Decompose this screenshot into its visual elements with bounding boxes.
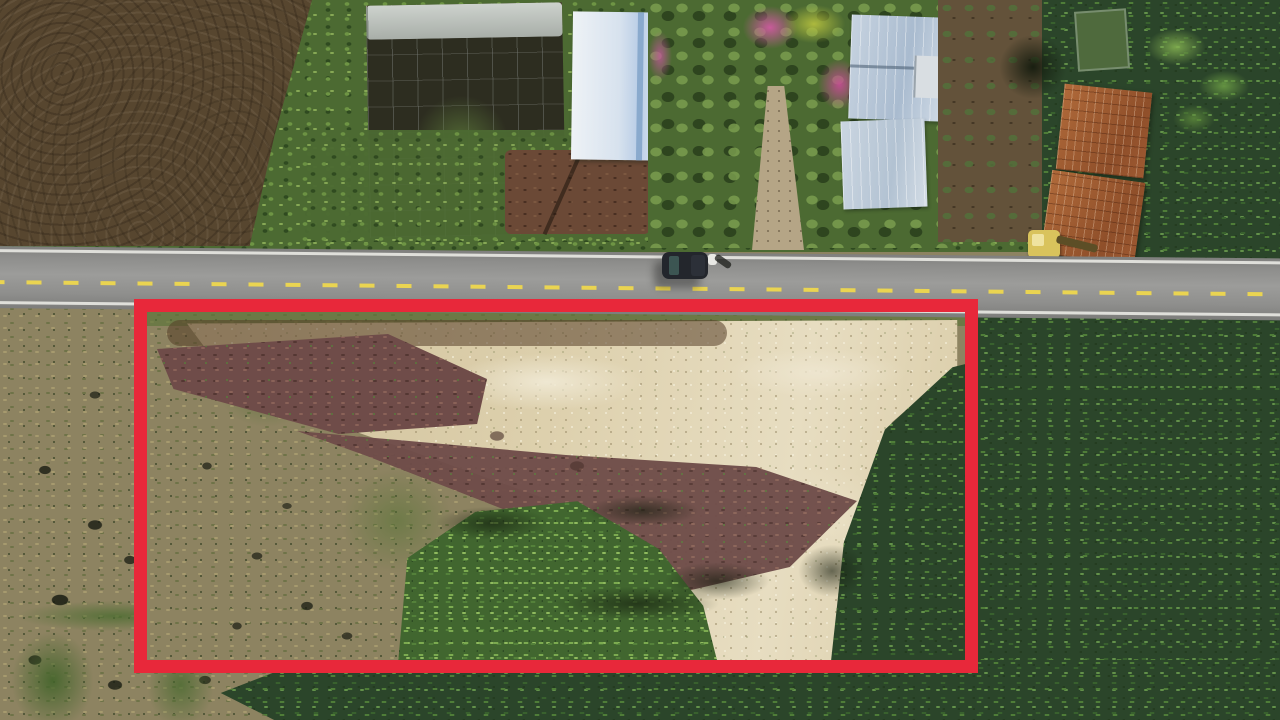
white-blue-metal-roof-building xyxy=(571,11,659,160)
banana-palm-cluster xyxy=(1140,8,1260,138)
aerial-photo xyxy=(0,0,1280,720)
bougainvillea-pink-tree xyxy=(645,25,675,87)
land-plot-highlight-rectangle xyxy=(134,299,978,673)
green-tarp-structure xyxy=(1074,8,1130,71)
rusty-roof-barn-upper xyxy=(1056,84,1153,179)
yellow-excavator xyxy=(1028,230,1060,258)
farmhouse-roof-lower xyxy=(840,119,927,210)
dark-pickup-truck xyxy=(662,252,708,279)
top-farmland-strip xyxy=(0,0,1280,252)
banana-plantation-right xyxy=(962,306,1280,720)
yellow-green-tree xyxy=(775,0,853,48)
road-yellow-dashed-centerline xyxy=(0,280,1280,296)
greenhouse-roof xyxy=(366,2,563,39)
tilled-brown-field xyxy=(0,0,312,246)
motorbike-with-rider xyxy=(706,250,732,274)
